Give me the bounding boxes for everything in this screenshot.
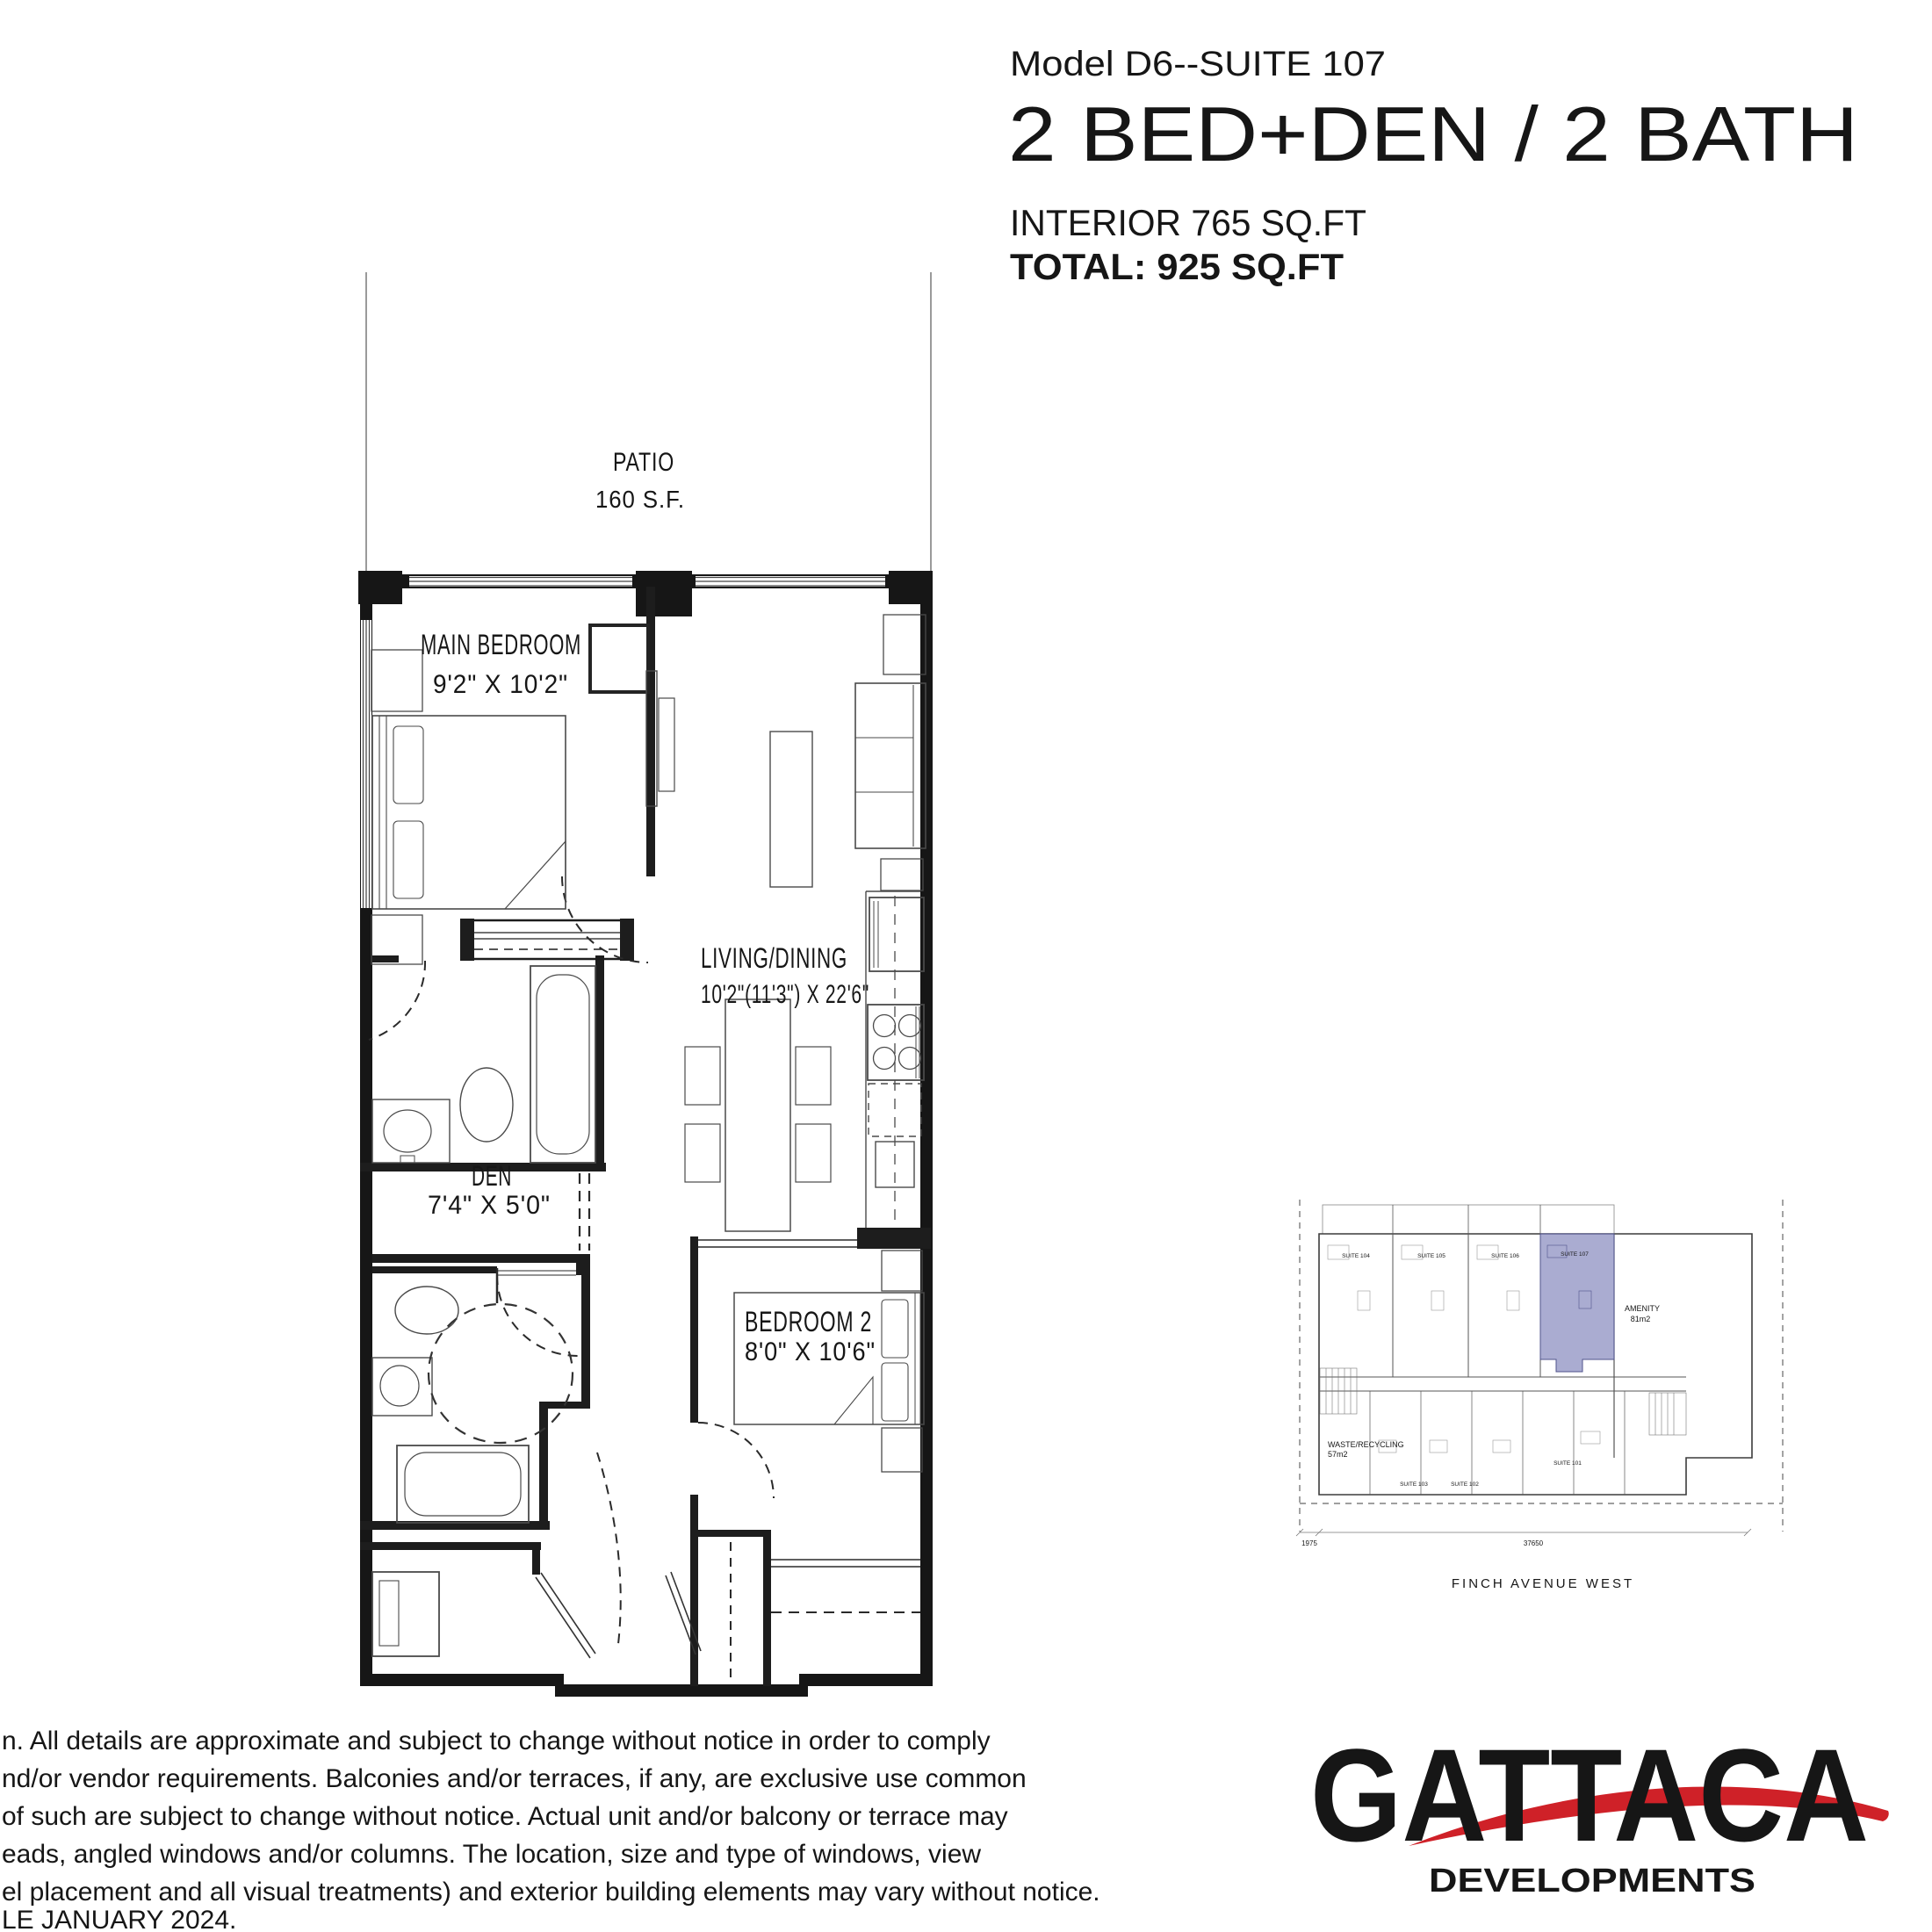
living-dining-furniture: [646, 615, 926, 1231]
suite-105-label: SUITE 105: [1417, 1253, 1445, 1259]
suite-107-label: SUITE 107: [1561, 1251, 1589, 1258]
disclaimer-line-5: el placement and all visual treatments) …: [2, 1878, 1100, 1907]
header: Model D6--SUITE 107 2 BED+DEN / 2 BATH I…: [1008, 45, 1858, 287]
disclaimer: n. All details are approximate and subje…: [2, 1727, 1100, 1932]
disclaimer-line-3: of such are subject to change without no…: [2, 1802, 1008, 1831]
interior-area: INTERIOR 765 SQ.FT: [1010, 202, 1366, 243]
logo: GATTACA DEVELOPMENTS: [1310, 1721, 1889, 1900]
patio-area: 160 S.F.: [595, 486, 685, 513]
patio-label: PATIO: [613, 448, 674, 477]
total-area: TOTAL: 925 SQ.FT: [1010, 246, 1344, 287]
wardrobe-closet: [460, 919, 634, 961]
disclaimer-line-4: eads, angled windows and/or columns. The…: [2, 1840, 981, 1869]
disclaimer-line-6: LE JANUARY 2024.: [2, 1906, 236, 1932]
waste-area: 57m2: [1328, 1450, 1348, 1459]
den-dims: 7'4" X 5'0": [428, 1191, 551, 1220]
dim-left-label: 1975: [1301, 1539, 1317, 1547]
suite-103-label: SUITE 103: [1400, 1481, 1428, 1488]
unit-floorplan: PATIO 160 S.F. MAIN BEDROOM 9'2" X 10'2"…: [358, 272, 933, 1697]
thin-partitions: [497, 1173, 920, 1679]
laundry-appliance: [372, 1572, 439, 1656]
logo-wordmark: GATTACA: [1310, 1721, 1869, 1869]
suite-101-label: SUITE 101: [1554, 1460, 1582, 1467]
street-label: FINCH AVENUE WEST: [1452, 1576, 1634, 1591]
disclaimer-line-2: nd/or vendor requirements. Balconies and…: [2, 1764, 1027, 1793]
interior-walls: [360, 587, 931, 1686]
waste-label: WASTE/RECYCLING: [1328, 1440, 1404, 1449]
suite-106-label: SUITE 106: [1491, 1253, 1519, 1259]
suite-102-label: SUITE 102: [1451, 1481, 1479, 1488]
keyplan-building: [1319, 1205, 1752, 1495]
den-label: DEN: [472, 1160, 512, 1192]
entry-door-leaves: [536, 1572, 701, 1658]
dim-total-label: 37650: [1524, 1539, 1544, 1547]
main-bedroom-label: MAIN BEDROOM: [421, 629, 581, 660]
key-plan: SUITE 104 SUITE 105 SUITE 106 SUITE 107 …: [1296, 1200, 1783, 1591]
logo-tagline: DEVELOPMENTS: [1429, 1863, 1755, 1900]
kitchen-fixtures: [866, 891, 924, 1228]
keyplan-dimension: [1296, 1529, 1751, 1536]
bedroom2-label: BEDROOM 2: [745, 1306, 872, 1337]
living-dining-dims: 10'2"(11'3") X 22'6": [701, 980, 869, 1009]
floorplan-page: Model D6--SUITE 107 2 BED+DEN / 2 BATH I…: [0, 0, 1932, 1932]
patio: [366, 272, 931, 574]
amenity-area: 81m2: [1631, 1315, 1651, 1323]
main-bedroom-dims: 9'2" X 10'2": [433, 670, 568, 699]
model-suite-line: Model D6--SUITE 107: [1010, 45, 1386, 83]
page-title: 2 BED+DEN / 2 BATH: [1008, 90, 1858, 177]
suite-104-label: SUITE 104: [1342, 1253, 1370, 1259]
living-dining-label: LIVING/DINING: [701, 942, 847, 974]
disclaimer-line-1: n. All details are approximate and subje…: [2, 1727, 991, 1755]
amenity-label: AMENITY: [1625, 1304, 1660, 1313]
turning-circle: [429, 1304, 573, 1443]
bedroom2-dims: 8'0" X 10'6": [745, 1337, 876, 1366]
floorplan-sheet: Model D6--SUITE 107 2 BED+DEN / 2 BATH I…: [0, 0, 1932, 1932]
bathroom1-fixtures: [372, 966, 595, 1163]
